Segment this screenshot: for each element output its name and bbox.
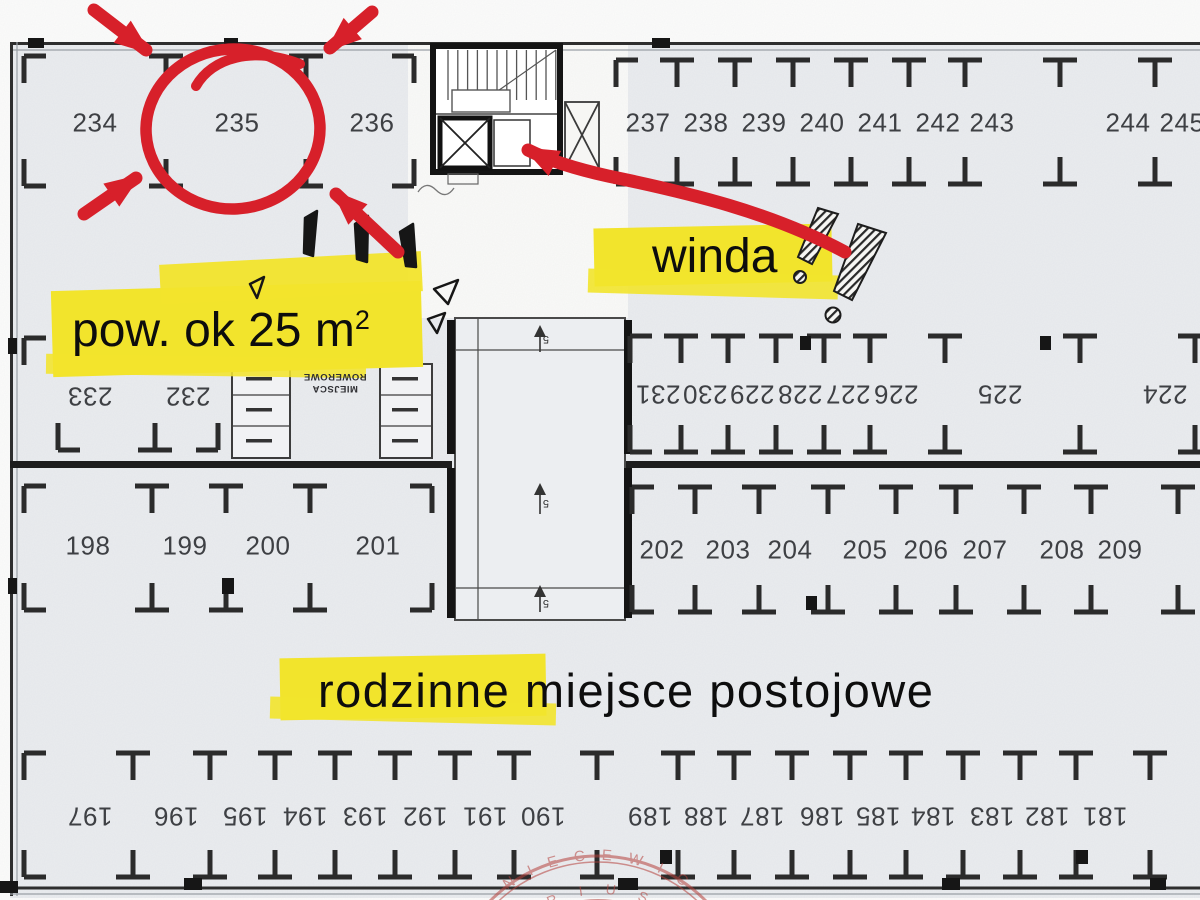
parking-spot-number: 243	[970, 108, 1015, 139]
parking-spot-number: 238	[684, 108, 729, 139]
parking-spot-number: 235	[215, 108, 260, 139]
parking-spot-number: 181	[1083, 801, 1128, 832]
parking-spot-number: 230	[683, 379, 728, 410]
parking-spot-number: 225	[978, 379, 1023, 410]
parking-spot-number: 194	[283, 801, 328, 832]
parking-spot-number: 231	[636, 379, 681, 410]
parking-spot-number: 227	[826, 379, 871, 410]
parking-spot-number: 202	[640, 535, 685, 566]
parking-spot-number: 190	[521, 801, 566, 832]
parking-spot-number: 184	[911, 801, 956, 832]
parking-spot-number: 241	[858, 108, 903, 139]
parking-spot-number: 182	[1025, 801, 1070, 832]
parking-spot-number: 237	[626, 108, 671, 139]
parking-spot-number: 199	[163, 531, 208, 562]
parking-spot-number: 186	[800, 801, 845, 832]
spot-numbers-layer: 2342352362372382392402412422432442452332…	[0, 0, 1200, 900]
parking-spot-number: 233	[68, 381, 113, 412]
parking-spot-number: 187	[740, 801, 785, 832]
parking-spot-number: 192	[403, 801, 448, 832]
parking-spot-number: 196	[154, 801, 199, 832]
parking-spot-number: 209	[1098, 535, 1143, 566]
parking-spot-number: 201	[356, 531, 401, 562]
parking-spot-number: 204	[768, 535, 813, 566]
parking-spot-number: 198	[66, 531, 111, 562]
parking-spot-number: 189	[628, 801, 673, 832]
parking-spot-number: 206	[904, 535, 949, 566]
parking-spot-number: 232	[166, 381, 211, 412]
parking-spot-number: 188	[684, 801, 729, 832]
parking-spot-number: 228	[778, 379, 823, 410]
parking-spot-number: 224	[1143, 379, 1188, 410]
parking-spot-number: 244	[1106, 108, 1151, 139]
parking-spot-number: 226	[874, 379, 919, 410]
parking-spot-number: 234	[73, 108, 118, 139]
parking-spot-number: 203	[706, 535, 751, 566]
parking-spot-number: 191	[463, 801, 508, 832]
parking-spot-number: 236	[350, 108, 395, 139]
parking-spot-number: 205	[843, 535, 888, 566]
parking-spot-number: 242	[916, 108, 961, 139]
parking-spot-number: 208	[1040, 535, 1085, 566]
parking-spot-number: 229	[730, 379, 775, 410]
floor-plan-scan: 5 5 5	[0, 0, 1200, 900]
parking-spot-number: 183	[970, 801, 1015, 832]
parking-spot-number: 193	[343, 801, 388, 832]
parking-spot-number: 195	[223, 801, 268, 832]
parking-spot-number: 245	[1160, 108, 1200, 139]
parking-spot-number: 207	[963, 535, 1008, 566]
parking-spot-number: 239	[742, 108, 787, 139]
parking-spot-number: 185	[856, 801, 901, 832]
parking-spot-number: 197	[68, 801, 113, 832]
parking-spot-number: 200	[246, 531, 291, 562]
parking-spot-number: 240	[800, 108, 845, 139]
